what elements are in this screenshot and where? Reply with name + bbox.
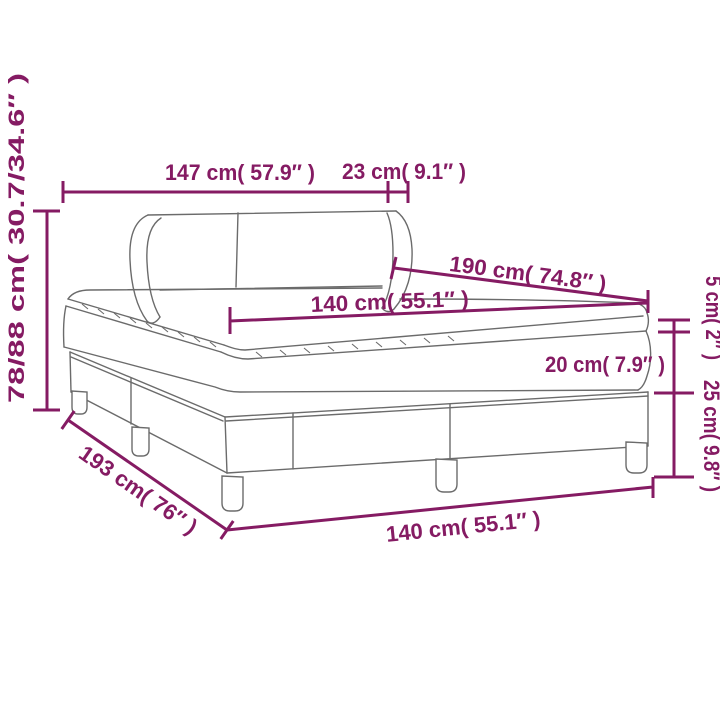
base-back-left-edge	[70, 352, 71, 392]
base-left-top-edge-inner	[71, 357, 223, 421]
mattress-left-corner-edge	[64, 306, 66, 347]
dim-line-height-stack	[654, 320, 694, 477]
topper-foot-edge	[646, 313, 648, 331]
headboard-left-wing-outer	[130, 215, 148, 321]
label-total-height: 78/88 cm( 30.7/34.6″ )	[4, 73, 29, 403]
topper-edge-left-top	[68, 299, 224, 345]
dim-line-total-height	[33, 211, 60, 410]
label-headboard-width: 147 cm( 57.9″ )	[165, 160, 315, 185]
headboard-top-edge	[148, 211, 396, 215]
label-mattress-length: 190 cm( 74.8″ )	[448, 251, 608, 296]
dim-line-headboard-wing	[388, 181, 408, 203]
leg-left-middle	[132, 427, 149, 456]
label-mattress-height: 20 cm( 7.9″ )	[545, 352, 665, 377]
headboard-seam	[236, 213, 238, 287]
base-front-top-edge	[225, 392, 648, 417]
label-topper-height: 5 cm( 2″ )	[701, 276, 720, 360]
base-corner-edge	[225, 417, 227, 473]
label-headboard-wing: 23 cm( 9.1″ )	[342, 159, 466, 184]
base-front-top-edge-inner	[226, 396, 648, 421]
headboard-left-wing-inner	[147, 218, 161, 317]
bed-dimension-diagram: 147 cm( 57.9″ ) 23 cm( 9.1″ ) 190 cm( 74…	[0, 0, 720, 720]
topper-edge-front-top	[224, 316, 643, 350]
leg-front-middle	[436, 459, 457, 492]
base-left-top-edge	[70, 352, 225, 417]
leg-front-corner	[222, 476, 243, 511]
topper-edge-left-bottom	[66, 306, 221, 352]
dimension-labels: 147 cm( 57.9″ ) 23 cm( 9.1″ ) 190 cm( 74…	[4, 73, 720, 547]
label-base-height: 25 cm( 9.8″ )	[699, 380, 720, 492]
leg-back-left	[72, 391, 87, 414]
leg-front-right	[626, 442, 647, 473]
product-dimension-image: 147 cm( 57.9″ ) 23 cm( 9.1″ ) 190 cm( 74…	[0, 0, 720, 720]
